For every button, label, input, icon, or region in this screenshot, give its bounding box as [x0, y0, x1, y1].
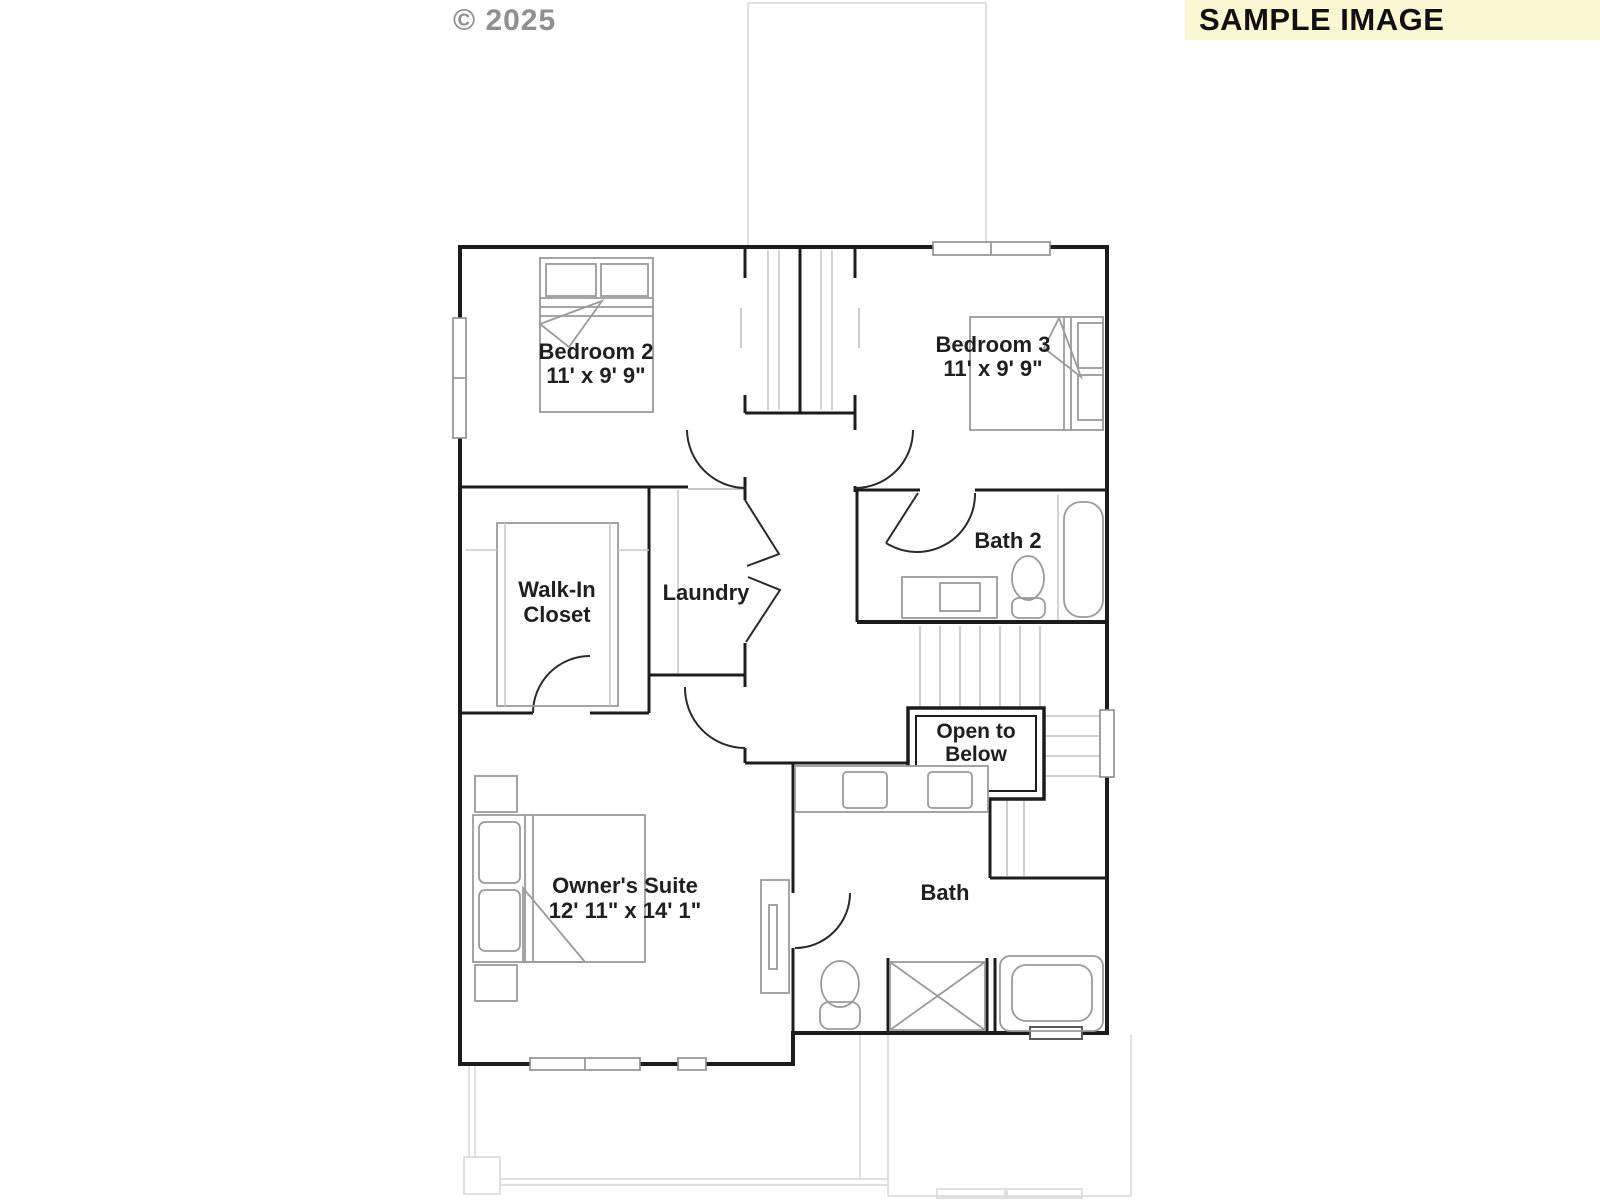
bedroom2-bed — [540, 258, 653, 412]
pillow-icon — [1078, 375, 1103, 420]
pillow-icon — [1078, 323, 1103, 368]
window-icon — [1030, 1027, 1082, 1039]
door-swing-icon — [886, 493, 975, 552]
bathtub-icon — [1064, 502, 1103, 617]
door-swing-icon — [855, 430, 913, 488]
bifold-door-icon — [745, 500, 780, 642]
room-dims-owners-suite: 12' 11" x 14' 1" — [549, 898, 701, 923]
room-label-bath: Bath — [921, 880, 970, 905]
pillow-icon — [546, 264, 596, 296]
shower-icon — [890, 962, 985, 1030]
dresser-icon — [761, 880, 789, 993]
nightstand-icon — [475, 776, 517, 812]
pillow-icon — [479, 890, 520, 951]
room-label-bedroom2: Bedroom 2 — [539, 339, 654, 364]
room-label-walk-in-closet-line1: Walk-In — [518, 577, 595, 602]
window-icon — [1100, 710, 1114, 777]
door-swings — [533, 430, 975, 948]
door-swing-icon — [795, 893, 850, 948]
nightstand-icon — [475, 965, 517, 1001]
floor-plan-svg: Bedroom 2 11' x 9' 9" Bedroom 3 11' x 9'… — [0, 0, 1600, 1200]
pillow-icon — [479, 822, 520, 883]
window-icon — [933, 242, 1050, 255]
floor-plan-page: © 2025 SAMPLE IMAGE — [0, 0, 1600, 1200]
room-label-open-to-below-line1: Open to — [936, 720, 1015, 743]
room-label-owners-suite: Owner's Suite — [552, 873, 698, 898]
pillow-icon — [601, 264, 648, 296]
room-label-bath2: Bath 2 — [974, 528, 1041, 553]
room-label-laundry: Laundry — [663, 580, 751, 605]
room-dims-bedroom3: 11' x 9' 9" — [943, 356, 1042, 381]
window-icon — [678, 1058, 706, 1070]
toilet-icon — [1012, 556, 1044, 600]
room-label-bedroom3: Bedroom 3 — [936, 332, 1051, 357]
window-icon — [530, 1058, 640, 1070]
room-dims-bedroom2: 11' x 9' 9" — [546, 363, 645, 388]
door-swing-icon — [687, 430, 745, 488]
room-label-walk-in-closet-line2: Closet — [523, 602, 591, 627]
bathtub-icon — [1000, 956, 1103, 1031]
toilet-icon — [821, 961, 859, 1007]
window-icon — [453, 318, 466, 438]
door-swing-icon — [533, 656, 590, 713]
bath2-fixtures — [902, 495, 1103, 620]
room-label-open-to-below-line2: Below — [945, 743, 1008, 766]
door-swing-icon — [685, 687, 745, 748]
